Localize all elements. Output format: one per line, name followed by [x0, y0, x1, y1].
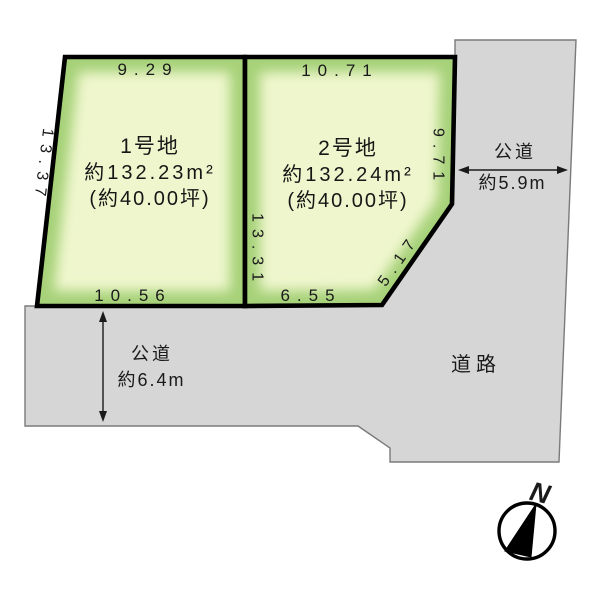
lot2-tsubo: (約40.00坪) [242, 188, 454, 214]
road-area-label: 道路 [426, 353, 526, 377]
lot1-info: 1号地 約132.23m² (約40.00坪) [40, 133, 260, 212]
lot2-name: 2号地 [242, 135, 454, 162]
lot2-area: 約132.24m² [242, 162, 454, 188]
right-road-width: 約5.9m [460, 173, 565, 195]
lot2-bottom-dimension: 6.55 [251, 286, 371, 306]
right-road-name: 公道 [465, 142, 565, 164]
lot1-tsubo: (約40.00坪) [40, 186, 260, 212]
lot2-info: 2号地 約132.24m² (約40.00坪) [242, 135, 454, 214]
lot2-top-dimension: 10.71 [280, 61, 400, 81]
lot1-name: 1号地 [40, 133, 260, 160]
bottom-road-name: 公道 [102, 344, 202, 366]
lot1-top-dimension: 9.29 [88, 60, 208, 80]
lot1-bottom-dimension: 10.56 [73, 286, 193, 306]
plot-layout-diagram: 9.29 10.71 13.37 13.31 9.71 10.56 6.55 5… [0, 0, 600, 600]
bottom-road-width: 約6.4m [99, 370, 204, 392]
lot1-area: 約132.23m² [40, 160, 260, 186]
compass-needle-icon [505, 504, 536, 557]
